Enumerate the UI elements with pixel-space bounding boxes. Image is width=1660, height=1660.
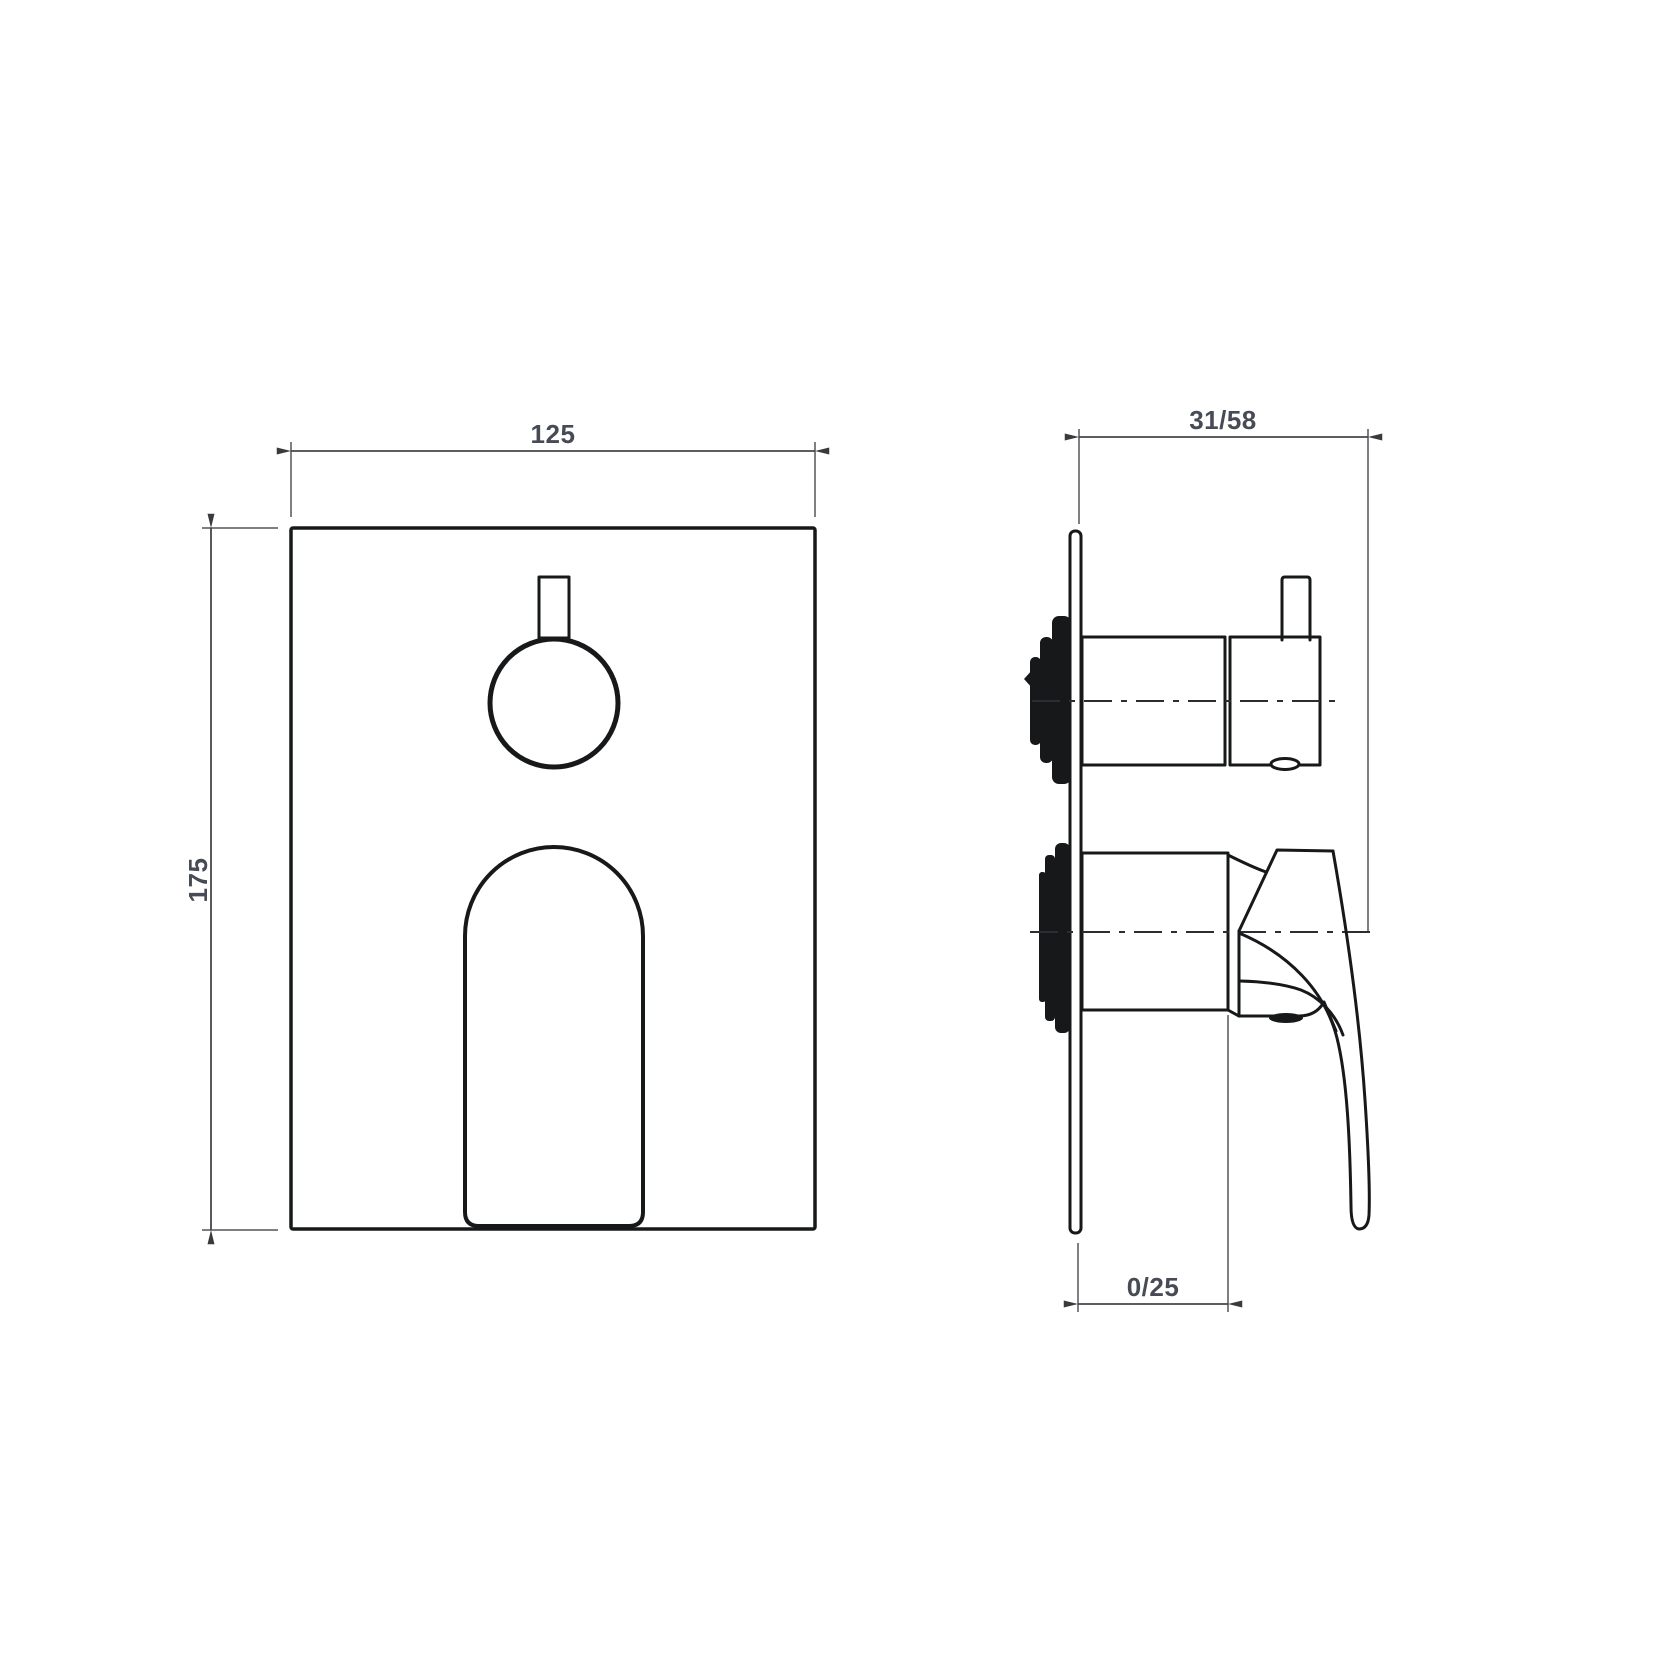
dimension-label-depth: 31/58	[1189, 405, 1257, 435]
side-upper-rosette	[1024, 616, 1071, 784]
diverter-stem-side	[1282, 577, 1310, 640]
dimension-label-height: 175	[183, 858, 213, 903]
rosette-tip	[1024, 669, 1033, 689]
diverter-detent-dot	[1271, 759, 1299, 770]
front-diverter-knob-circle	[490, 639, 618, 767]
front-view: 125 175	[183, 419, 815, 1230]
rosette-step-1	[1052, 616, 1071, 784]
dimension-label-plate-projection: 0/25	[1127, 1272, 1180, 1302]
side-plate-projection-dimension: 0/25	[1078, 1015, 1228, 1312]
drawing-sheet: 125 175	[0, 0, 1660, 1660]
rosette-step-2	[1045, 855, 1055, 1021]
side-lower-rosette	[1039, 843, 1070, 1033]
front-trim-plate-outline	[291, 528, 815, 1229]
front-width-dimension: 125	[291, 419, 815, 517]
rosette-step-1	[1055, 843, 1070, 1033]
lever-screw-cover-dot	[1269, 1013, 1303, 1023]
side-wall-plate	[1070, 531, 1081, 1233]
lever-hub-top	[1239, 850, 1333, 931]
rosette-step-3	[1039, 872, 1046, 1002]
mixer-lever-side	[1228, 850, 1369, 1229]
front-height-dimension: 175	[183, 528, 278, 1230]
lever-neck-curve	[1228, 855, 1266, 872]
lever-body-join	[1228, 1010, 1239, 1016]
lever-blade-inner-edge	[1239, 933, 1351, 1206]
side-view: 31/58 0/25	[1024, 405, 1370, 1312]
technical-drawing-canvas: 125 175	[0, 0, 1660, 1660]
dimension-label-width: 125	[531, 419, 576, 449]
rosette-step-2	[1040, 637, 1053, 763]
